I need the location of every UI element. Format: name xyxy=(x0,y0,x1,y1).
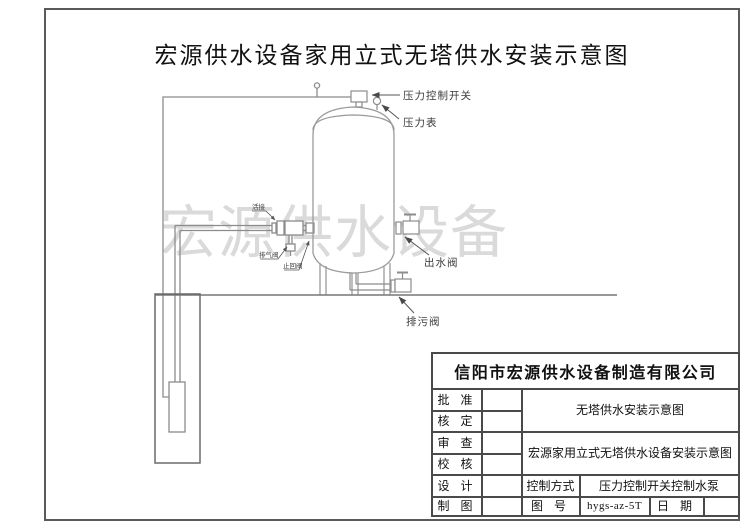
title-block: 信阳市宏源供水设备制造有限公司 批 准 核 定 审 查 校 核 设 计 制 图 … xyxy=(431,352,740,517)
pressure-switch-label: 压力控制开关 xyxy=(403,89,472,102)
doc-title-1: 无塔供水安装示意图 xyxy=(522,388,738,431)
submersible-pump xyxy=(169,382,185,432)
company-name: 信阳市宏源供水设备制造有限公司 xyxy=(433,354,738,388)
tb-label-draft: 制 图 xyxy=(433,496,481,515)
drain-valve-label: 排污阀 xyxy=(406,315,441,328)
date-label: 日 期 xyxy=(650,496,703,515)
date-value xyxy=(704,496,738,515)
drawing-no-label: 图 号 xyxy=(522,496,579,515)
pressure-switch xyxy=(351,91,367,107)
watermark-text: 宏源供水设备 xyxy=(160,202,508,265)
control-mode-value: 压力控制开关控制水泵 xyxy=(580,474,738,496)
tb-label-review: 审 查 xyxy=(433,431,481,453)
check-valve-label: 止回阀 xyxy=(283,261,303,270)
pressure-gauge xyxy=(373,97,380,110)
outlet-valve-label: 出水阀 xyxy=(424,256,459,269)
control-mode-label: 控制方式 xyxy=(522,474,579,496)
pressure-gauge-label: 压力表 xyxy=(403,116,438,129)
air-valve-label: 排气阀 xyxy=(259,250,279,259)
drawing-no-value: hygs-az-5T xyxy=(580,496,649,515)
tb-vline-1 xyxy=(481,388,483,515)
union-label: 活接 xyxy=(252,202,266,211)
doc-title-2: 宏源家用立式无塔供水设备安装示意图 xyxy=(522,431,738,474)
tb-label-check: 校 核 xyxy=(433,453,481,474)
tb-label-design: 设 计 xyxy=(433,474,481,496)
tb-label-verify: 核 定 xyxy=(433,410,481,431)
drain-valve-assembly xyxy=(350,273,411,293)
wire-ball xyxy=(314,83,319,88)
tb-label-approve: 批 准 xyxy=(433,388,481,410)
drain-valve-arrow xyxy=(399,297,414,313)
union-fitting xyxy=(272,221,284,235)
check-valve xyxy=(285,221,314,235)
drawing-sheet: 宏源供水设备家用立式无塔供水安装示意图 宏源供水设备 xyxy=(0,0,750,530)
